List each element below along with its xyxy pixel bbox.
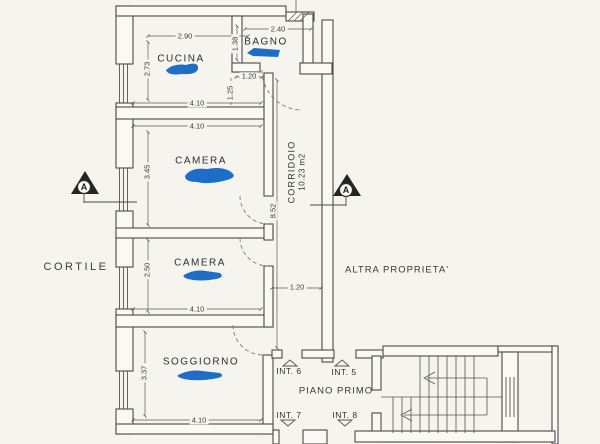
dim-camera1-height: 3.45	[143, 163, 151, 182]
wall	[552, 346, 558, 444]
wall	[116, 228, 273, 238]
door-arc	[240, 196, 268, 224]
dim-camera2-width: 4.10	[188, 305, 207, 313]
room-label-soggiorno: SOGGIORNO	[163, 357, 239, 368]
wall	[264, 224, 273, 240]
corridoio-name: CORRIDOIO	[286, 141, 298, 204]
room-label-camera-2: CAMERA	[174, 258, 226, 269]
stair-treads	[420, 356, 474, 397]
redaction-scribbles	[166, 48, 280, 380]
label-int-7: INT. 7	[276, 410, 301, 420]
dim-bagno-door: 1.20	[240, 72, 259, 80]
dim-bagno-width: 2.40	[269, 25, 288, 33]
dim-camera2-height: 2.50	[143, 261, 151, 280]
dim-cucina-height: 2.73	[143, 60, 151, 79]
caret-int8	[338, 420, 352, 426]
section-leader-left	[84, 194, 137, 203]
redaction-scribble	[247, 48, 280, 57]
label-altra-proprieta: ALTRA PROPRIETA'	[345, 265, 449, 276]
corridoio-area: 10.23 m2	[298, 141, 309, 204]
staircase	[381, 356, 502, 433]
door-arc	[233, 325, 263, 355]
caret-int5	[335, 360, 349, 366]
label-cortile: CORTILE	[44, 261, 109, 273]
wall	[303, 430, 327, 444]
label-piano-primo: PIANO PRIMO	[299, 386, 373, 397]
wall	[116, 107, 273, 119]
section-marker-letter-left: A	[81, 182, 88, 192]
wall	[300, 63, 332, 74]
label-int-5: INT. 5	[331, 367, 356, 377]
dim-bagno-depth: 1.38	[231, 35, 239, 54]
dim-soggiorno-width: 4.10	[190, 416, 209, 424]
wall	[272, 350, 282, 358]
dim-camera1-top: 4.10	[188, 122, 207, 130]
door-arc	[240, 238, 268, 266]
wall	[116, 6, 286, 16]
wall	[273, 430, 279, 444]
room-label-bagno: BAGNO	[244, 37, 288, 48]
caret-int7	[281, 420, 295, 426]
wall	[303, 14, 313, 66]
dim-corridor-width: 1.20	[288, 283, 307, 291]
redaction-scribble	[185, 168, 234, 183]
section-marker-letter-right: A	[343, 185, 350, 195]
wall	[383, 346, 498, 356]
dim-cucina-width: 2.90	[176, 32, 195, 40]
wall	[116, 315, 273, 327]
wall	[355, 431, 555, 442]
window	[120, 371, 128, 409]
wall	[264, 266, 273, 327]
dim-corridor-neck: 1.25	[226, 84, 234, 103]
room-label-camera-1: CAMERA	[175, 156, 227, 167]
room-label-corridoio: CORRIDOIO 10.23 m2	[286, 141, 309, 204]
redaction-scribble	[184, 271, 222, 281]
room-label-cucina: CUCINA	[157, 54, 204, 65]
redaction-scribble	[178, 371, 222, 381]
dim-corridor-length: 8.52	[269, 202, 277, 221]
dim-cucina-bottom: 4.10	[188, 99, 207, 107]
dim-soggiorno-height: 3.37	[140, 364, 148, 383]
wall	[116, 211, 133, 267]
wall	[372, 356, 381, 390]
wall	[302, 350, 334, 358]
label-int-6: INT. 6	[276, 366, 301, 376]
label-int-8: INT. 8	[332, 410, 357, 420]
redaction-scribble	[166, 64, 198, 75]
wall	[116, 424, 273, 434]
window	[120, 168, 128, 211]
floor-plan-linework	[0, 0, 600, 444]
floor-plan-scan: CUCINA BAGNO CAMERA CAMERA SOGGIORNO COR…	[0, 0, 600, 444]
wall	[498, 346, 558, 352]
window	[120, 267, 128, 309]
window	[120, 64, 128, 103]
wall	[263, 355, 273, 434]
